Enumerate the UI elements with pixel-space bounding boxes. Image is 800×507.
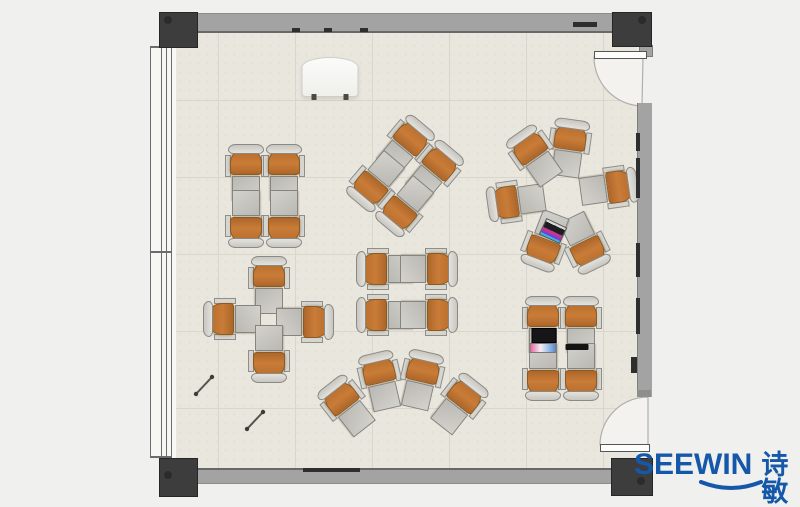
column-dot-icon (638, 16, 646, 24)
desk-top (517, 183, 547, 214)
column-top-left (159, 12, 198, 48)
chair-backrest (266, 238, 302, 248)
chair-backrest (525, 296, 561, 306)
chair-desk-unit (400, 297, 458, 333)
wall-fixture-mark (292, 28, 300, 32)
window-mullion (150, 251, 172, 253)
door-frame-cap (637, 390, 651, 397)
wall-panel-strip (636, 133, 640, 151)
podium-foot (344, 94, 349, 100)
wall-fixture-mark (303, 468, 360, 472)
wall-panel-strip (636, 298, 640, 334)
wall-fixture-mark (573, 22, 597, 27)
laptop-screen (532, 328, 557, 343)
presenter-podium (302, 57, 359, 97)
chair-backrest (324, 304, 334, 340)
desk-top (255, 325, 283, 351)
column-top-right (612, 12, 652, 47)
wall-bottom (196, 468, 651, 484)
wall-panel-strip (636, 243, 640, 277)
door-leaf-top-right (594, 51, 647, 59)
chair-backrest (448, 251, 458, 287)
chair-desk-unit (563, 343, 599, 401)
chair-backrest (525, 391, 561, 401)
chair-backrest (251, 256, 287, 266)
logo-text-cn: 诗敏 (761, 452, 800, 506)
chair-backrest (228, 238, 264, 248)
laptop-keyboard (530, 343, 557, 353)
wall-top (197, 13, 613, 33)
floor-plan: SEEWIN 诗敏 (0, 0, 800, 507)
window-wall-left (150, 46, 176, 458)
chair-backrest (228, 144, 264, 154)
chair-desk-unit (266, 190, 302, 248)
wall-panel-strip (631, 357, 637, 373)
chair-backrest (448, 297, 458, 333)
chair-desk-unit (228, 190, 264, 248)
chair-desk-unit (251, 325, 287, 383)
desk-top (400, 301, 426, 329)
logo-text-en: SEEWIN (634, 450, 752, 480)
desk-top (578, 175, 608, 206)
chair-backrest (266, 144, 302, 154)
chair-backrest (563, 296, 599, 306)
podium-foot (312, 94, 317, 100)
seewin-logo: SEEWIN 诗敏 (634, 450, 800, 506)
chair-desk-unit (400, 251, 458, 287)
chair-backrest (356, 297, 366, 333)
column-dot-icon (164, 16, 172, 24)
laptop-on-desk (530, 328, 557, 352)
logo-swoosh-icon (698, 480, 764, 492)
wall-fixture-mark (360, 28, 368, 32)
desk-top (232, 190, 260, 216)
desk-top (270, 190, 298, 216)
column-bottom-left (159, 458, 198, 497)
desk-top (400, 255, 426, 283)
wall-panel-strip (636, 158, 640, 198)
chair-backrest (203, 301, 213, 337)
tablet-on-desk (566, 344, 589, 350)
column-dot-icon (164, 471, 172, 479)
chair-backrest (356, 251, 366, 287)
wall-fixture-mark (324, 28, 332, 32)
chair-backrest (251, 373, 287, 383)
chair-backrest (563, 391, 599, 401)
